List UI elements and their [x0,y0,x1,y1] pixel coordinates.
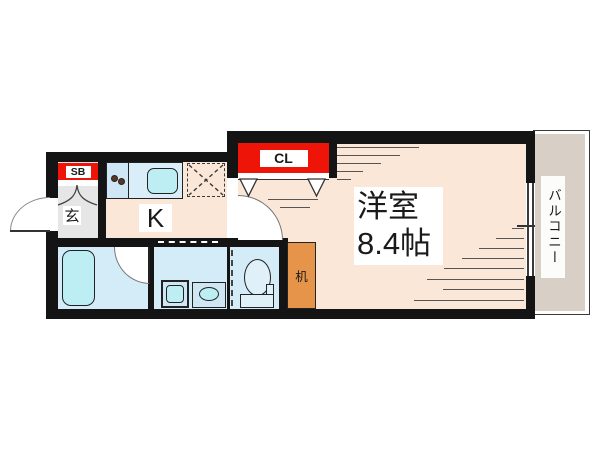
wall [526,276,535,319]
flooring-line [444,268,524,269]
closet-label: CL [260,150,308,167]
burner [118,178,125,185]
shoebox-front [58,180,98,186]
room-name: 洋室 [357,189,443,225]
toilet-tank [240,294,274,308]
wall [46,309,535,319]
window-tick [517,225,535,227]
room-label: 洋室 8.4帖 [354,187,443,265]
entrance-door-arc [10,197,50,231]
flooring-line [280,207,310,208]
flooring-line [268,199,318,200]
wall [328,143,337,178]
stove-unit [106,162,130,199]
shoebox-tag: SB [58,163,98,180]
window [526,183,535,276]
flooring-line [337,155,400,156]
refrigerator-space [187,163,225,197]
entrance-label: 玄 [63,206,81,225]
burner [111,175,118,182]
room-size: 8.4帖 [357,225,443,263]
kitchen-sink [147,168,178,194]
flooring-line [479,248,524,249]
toilet-door-dashed [231,250,233,306]
wall [227,131,238,178]
flooring-line [462,258,524,259]
wall [46,152,58,198]
flooring-line [337,179,351,180]
flooring-line [337,147,419,148]
shoebox-label: SB [66,166,91,178]
flooring-line [443,289,524,290]
flooring-line [337,171,363,172]
sliding-door-dashes [158,241,218,243]
window-glass-line [532,183,534,276]
washing-machine-drum [166,285,184,303]
wall [227,247,230,309]
kitchen-label: K [139,204,172,232]
flooring-line [414,300,524,301]
washing-machine [161,280,189,308]
flooring-line [427,279,524,280]
flooring-line [512,228,524,229]
wall [98,162,106,238]
window-glass-line [527,183,529,276]
entrance-door-line [10,230,50,232]
desk-label: 机 [295,266,308,285]
wash-basin-bowl [199,287,219,301]
floor-plan: CL SB 机 玄 K 洋室 8.4帖 バルコニー [0,0,600,450]
flooring-line [496,238,524,239]
closet-front [238,173,329,180]
wash-basin [192,282,226,308]
bathtub [62,250,95,306]
closet-tag: CL [238,143,329,173]
wall [46,152,234,162]
balcony-label: バルコニー [541,176,565,278]
wall [526,131,535,183]
desk: 机 [287,242,316,309]
flooring-line [337,163,381,164]
